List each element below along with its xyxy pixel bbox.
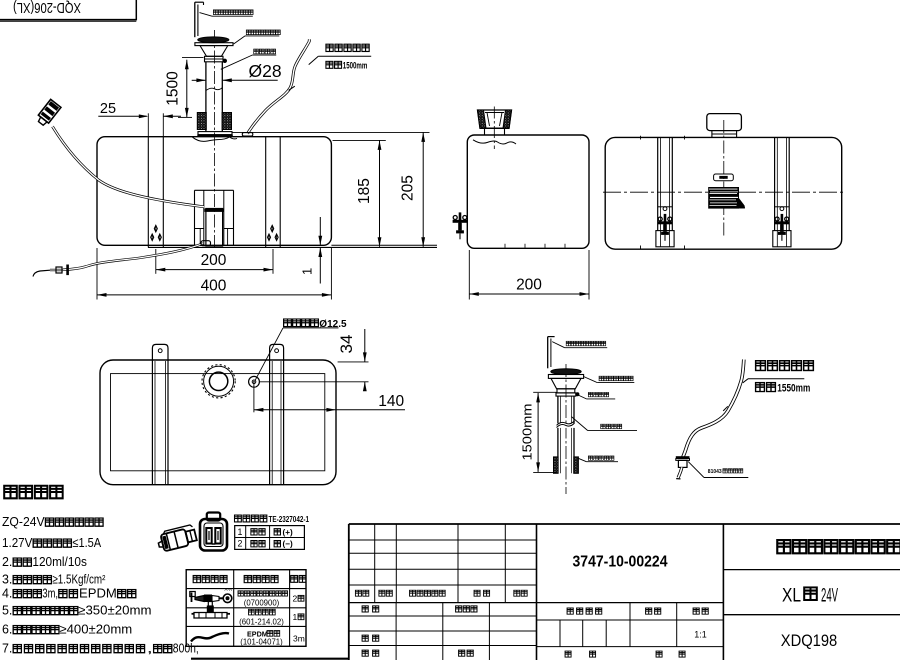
svg-text:34: 34 [337, 335, 356, 354]
svg-text:6.: 6. [2, 622, 12, 637]
svg-text:,: , [147, 641, 153, 656]
svg-text:3m: 3m [293, 634, 305, 644]
svg-text:5.: 5. [2, 603, 12, 618]
svg-text:7.: 7. [2, 641, 12, 656]
svg-text:1:1: 1:1 [694, 629, 707, 639]
svg-text:≥350±20mm: ≥350±20mm [78, 603, 151, 618]
svg-text:TE-2327042-1: TE-2327042-1 [269, 514, 310, 524]
svg-text:XL: XL [782, 585, 801, 606]
svg-text:(601-214.02): (601-214.02) [239, 617, 284, 626]
svg-text:3m,: 3m, [42, 586, 58, 601]
svg-text:1: 1 [238, 527, 243, 537]
svg-text:120ml/10s: 120ml/10s [32, 554, 87, 569]
svg-text:(0700900): (0700900) [244, 598, 280, 607]
svg-text:XDQ198: XDQ198 [781, 631, 838, 650]
svg-text:1500mm: 1500mm [521, 404, 535, 461]
svg-text:(101-04071): (101-04071) [240, 638, 283, 647]
svg-text:2: 2 [293, 594, 298, 604]
svg-text:1.27V: 1.27V [2, 535, 33, 550]
svg-text:4.: 4. [2, 586, 12, 601]
svg-text:≥1.5Kgf/cm²: ≥1.5Kgf/cm² [52, 572, 105, 587]
svg-text:185: 185 [356, 178, 373, 204]
svg-text:2: 2 [238, 539, 243, 549]
svg-text:81043: 81043 [708, 469, 722, 475]
svg-text:1: 1 [300, 268, 315, 275]
svg-text:1500: 1500 [164, 71, 181, 106]
svg-text:A-A: A-A [225, 587, 233, 592]
svg-text:1500mm: 1500mm [343, 61, 368, 71]
svg-text:200: 200 [516, 277, 542, 294]
svg-text:200: 200 [201, 252, 227, 269]
svg-text:400: 400 [201, 277, 227, 294]
svg-text:XQD-206(XL): XQD-206(XL) [13, 0, 81, 15]
svg-text:205: 205 [400, 175, 417, 201]
svg-text:140: 140 [378, 393, 404, 410]
svg-text:25: 25 [100, 101, 116, 117]
svg-text:1550mm: 1550mm [777, 383, 810, 395]
svg-text:≥400±20mm: ≥400±20mm [59, 622, 132, 637]
svg-text:Ø28: Ø28 [249, 61, 282, 81]
svg-text:2.: 2. [2, 554, 12, 569]
svg-text:EPDM: EPDM [79, 586, 117, 601]
svg-text:24V: 24V [821, 585, 838, 606]
svg-text:(+): (+) [283, 528, 294, 537]
svg-text:3.: 3. [2, 572, 12, 587]
svg-text:1: 1 [293, 612, 298, 622]
svg-text:ZQ-24V: ZQ-24V [2, 514, 45, 529]
svg-text:≤1.5A: ≤1.5A [72, 535, 101, 550]
svg-text:(−): (−) [283, 540, 294, 549]
svg-text:3747-10-00224: 3747-10-00224 [573, 554, 668, 571]
